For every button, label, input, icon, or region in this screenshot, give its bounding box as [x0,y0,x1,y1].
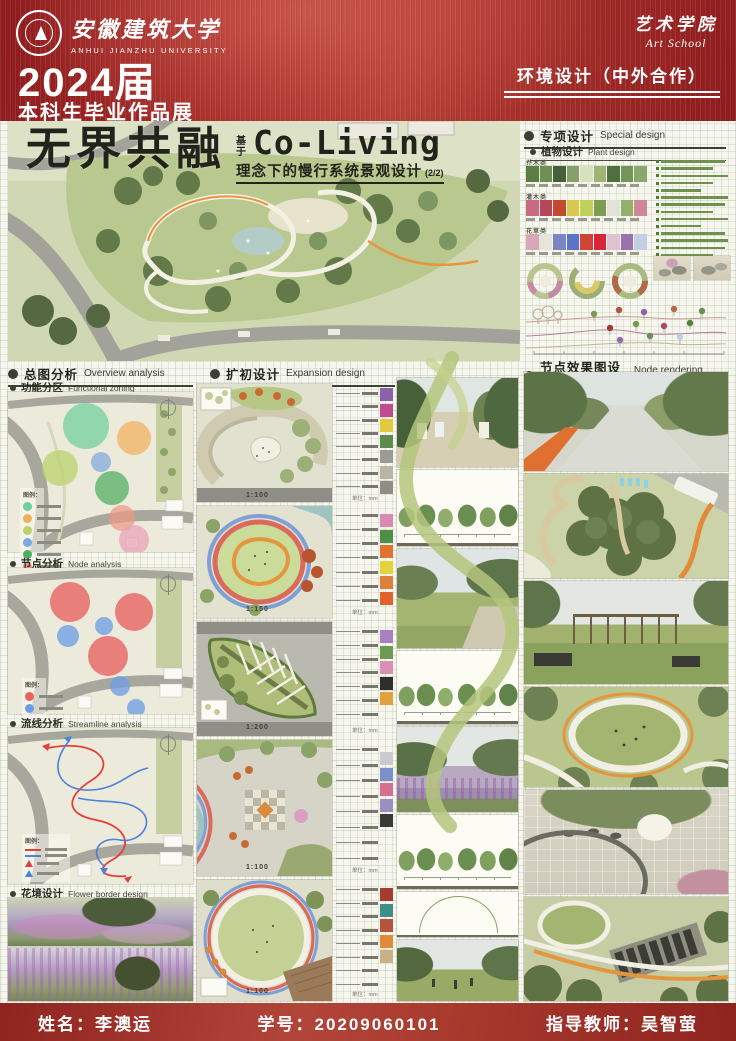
section-title-en: Special design [600,130,665,141]
node-legend-swatches [25,692,43,713]
expansion-plan-1 [197,384,332,502]
node-render-pergola-lawn [524,581,728,684]
material-swatch-strip [380,388,393,497]
plan-scale: 1:200 [246,724,269,731]
plant-captions [526,252,639,255]
node-render-grove-aerial [524,474,728,578]
section-drawing-greenhouse [397,892,518,937]
section-title-en: Flower border design [68,889,148,899]
plant-thumbnails-flowers [526,234,647,250]
section-title-cn: 专项设计 [540,126,594,145]
legend-title: 图例： [25,836,67,845]
section-title-en: Node analysis [68,559,121,569]
title-english: Co-Living [253,128,441,158]
title-main: 无界共融 [26,126,226,171]
section-drawing [397,815,518,889]
bullet-icon [10,891,16,897]
plan-annotations [336,514,378,602]
student-name: 姓名：李澳运 [38,1010,152,1035]
plan-scale: 1:100 [246,988,269,995]
title-prefix: 基于 [236,136,249,158]
north-arrow-icon [160,400,176,416]
bullet-icon [10,561,16,567]
unit-note: 单位：mm [352,726,378,734]
art-school-name-cn: 艺术学院 [634,10,718,35]
bullet-icon [8,369,18,379]
legend-red-entry-icon [25,860,33,867]
unit-note: 单位：mm [352,608,378,616]
expansion-plan-4 [197,740,332,876]
bullet-icon [530,149,536,155]
unit-note: 单位：mm [352,494,378,502]
art-school-name-en: Art School [634,36,718,51]
plan-scale: 1:150 [246,606,269,613]
expansion-plan-2 [197,506,332,618]
flower-border-photo [8,898,193,946]
bullet-icon [10,721,16,727]
plan-annotations [336,630,378,716]
perspective-render-flower-path [397,727,518,812]
plant-thumbnails-shrubs [526,200,647,216]
title-subtitle: 理念下的慢行系统景观设计 [236,160,422,181]
section-drawing [397,651,518,724]
perspective-render-path [397,378,518,467]
plant-captions [526,184,639,187]
plan-annotations [336,888,378,986]
section-title-en: Overview analysis [84,368,165,379]
underline-decoration [504,96,720,98]
legend-title: 图例： [23,490,41,499]
advisor-name: 指导教师：吴智萤 [546,1010,698,1035]
plan-scale: 1:100 [246,864,269,871]
node-render-street [524,372,728,471]
perspective-render-lawn [397,549,518,648]
section-title-en: Plant design [588,147,635,157]
unit-note: 单位：mm [352,990,378,998]
plant-captions [526,218,639,221]
unit-note: 单位：mm [352,866,378,874]
section-title-en: Functional zoning [68,383,135,393]
art-school-block: 艺术学院 Art School [634,10,718,51]
north-arrow-icon [160,736,176,752]
node-legend: 图例： [22,678,46,718]
material-swatch-strip [380,630,393,708]
perspective-render-meadow [397,940,518,1001]
section-plant-design: 植物设计 Plant design [530,144,726,161]
bullet-icon [524,131,534,141]
node-render-ring-lawn-aerial [524,687,728,787]
university-name-cn: 安徽建筑大学 [71,12,228,44]
section-drawing [397,470,518,546]
planting-elevation-profiles [524,306,728,356]
header-banner: 安徽建筑大学 ANHUI JIANZHU UNIVERSITY 艺术学院 Art… [0,0,736,121]
planting-ring-diagrams [524,258,650,304]
material-swatch-strip [380,888,393,966]
flower-border-photo [8,948,193,1001]
plan-scale: 1:100 [246,492,269,499]
streamline-legend: 图例： [22,834,70,882]
section-title-en: Expansion design [286,368,365,379]
legend-blue-route-icon [25,855,41,857]
material-swatch-strip [380,752,393,830]
legend-blue-entry-icon [25,870,33,877]
node-render-plaza [524,790,728,894]
material-swatch-strip [380,514,393,607]
plant-notes-text-block [656,160,728,261]
legend-red-route-icon [25,849,41,851]
bullet-icon [210,369,220,379]
north-arrow-icon [160,576,176,592]
title-sheet-number: (2/2) [425,168,444,178]
poster-title: 无界共融 基于 Co-Living 理念下的慢行系统景观设计 (2/2) [26,126,444,184]
section-title-cn: 扩初设计 [226,364,280,383]
student-id: 学号：20209060101 [257,1010,440,1035]
program-title: 环境设计（中外合作） [504,62,720,98]
section-title-en: Streamline analysis [68,719,142,729]
legend-title: 图例： [25,680,43,689]
expansion-plan-5 [197,880,332,1001]
footer-banner: 姓名：李澳运 学号：20209060101 指导教师：吴智萤 [0,1003,736,1041]
plan-annotations [336,392,378,488]
underline-decoration [504,91,720,93]
poster: 安徽建筑大学 ANHUI JIANZHU UNIVERSITY 艺术学院 Art… [0,0,736,1041]
expansion-plan-3 [197,622,332,736]
plan-annotations [336,748,378,860]
section-title-cn: 植物设计 [541,144,583,159]
bullet-icon [10,385,16,391]
node-render-market-aerial [524,897,728,1001]
program-text: 环境设计（中外合作） [517,67,707,86]
plant-thumbnails-trees [526,166,647,182]
